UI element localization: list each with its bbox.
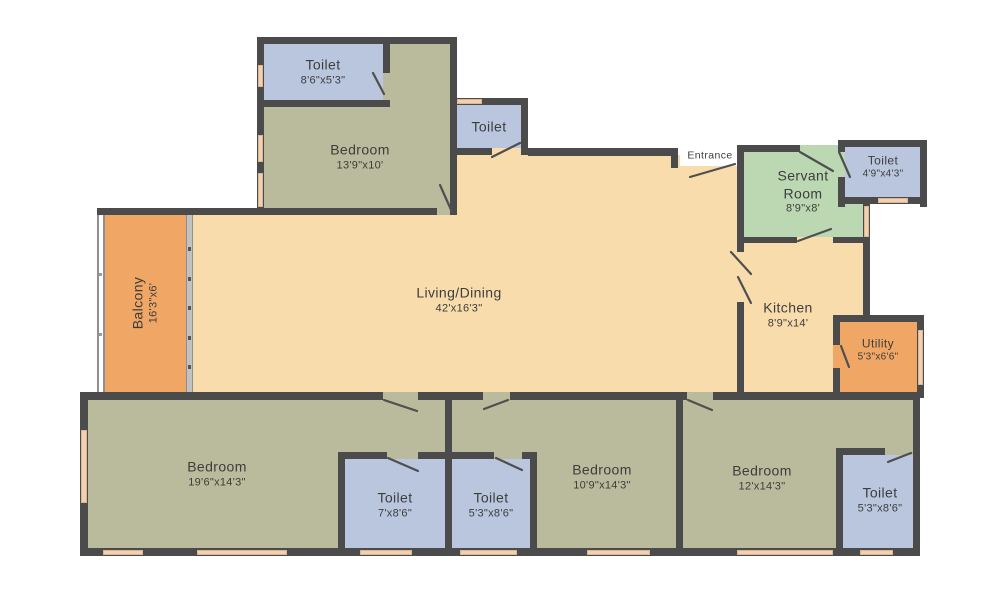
door-swing-line (841, 346, 849, 367)
door-swing-line (492, 143, 520, 157)
room-label-living-dining: Living/Dining 42'x16'3" (416, 284, 501, 315)
entrance-label: Entrance (687, 149, 732, 162)
room-label-bedroom-3: Bedroom 12'x14'3" (732, 462, 792, 493)
door-swing-line (839, 152, 850, 177)
room-label-kitchen: Kitchen 8'9"x14' (763, 299, 813, 330)
room-label-toilet-servant: Toilet 4'9"x4'3" (863, 153, 904, 181)
room-label-toilet-mid: Toilet (471, 118, 506, 136)
room-label-servant-room: Servant Room 8'9"x8' (770, 168, 836, 217)
door-swing-line (484, 400, 508, 409)
door-swing-line (731, 252, 751, 274)
door-swing-line (888, 453, 911, 462)
room-label-toilet-b3: Toilet 5'3"x8'6" (858, 484, 903, 515)
room-label-bedroom-2: Bedroom 10'9"x14'3" (572, 461, 632, 492)
room-label-balcony: Balcony 16'3"x6' (129, 277, 160, 330)
door-swing-line (688, 400, 712, 410)
door-swing-line (373, 73, 384, 94)
room-label-toilet-tl: Toilet 8'6"x5'3" (301, 56, 346, 87)
room-label-utility: Utility 5'3"x6'6" (858, 336, 899, 364)
door-swing-line (384, 400, 417, 411)
floor-plan: Toilet 8'6"x5'3" Bedroom 13'9"x10' Toile… (0, 0, 1000, 600)
door-swing-line (738, 277, 751, 303)
door-swing-line (798, 229, 831, 241)
door-swing-line (440, 185, 452, 212)
door-swing-line (388, 458, 418, 471)
door-swing-line (690, 164, 735, 177)
room-label-bedroom-1: Bedroom 19'6"x14'3" (187, 458, 247, 489)
door-swing-line (496, 458, 522, 470)
room-label-bedroom-tl: Bedroom 13'9"x10' (330, 141, 390, 172)
room-label-toilet-b2: Toilet 5'3"x8'6" (469, 489, 514, 520)
room-label-toilet-b1: Toilet 7'x8'6" (377, 489, 412, 520)
